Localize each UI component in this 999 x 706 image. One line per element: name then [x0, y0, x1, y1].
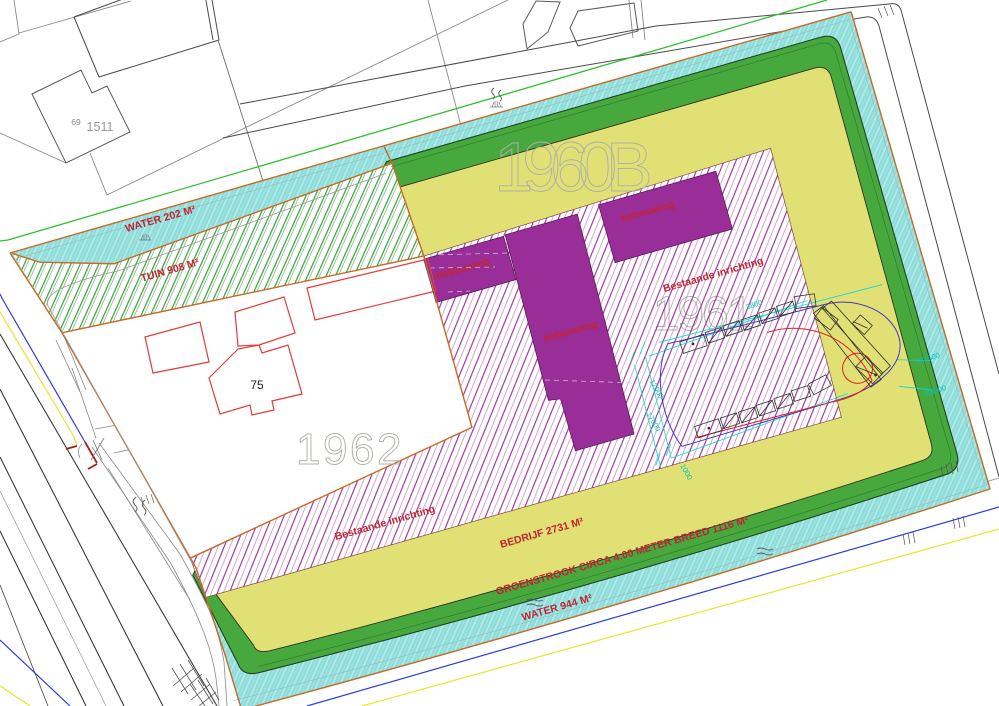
svg-text:1962: 1962: [296, 425, 404, 474]
svg-text:1960B: 1960B: [494, 128, 649, 206]
svg-text:69: 69: [71, 117, 81, 127]
svg-text:75: 75: [250, 378, 264, 392]
svg-text:1511: 1511: [87, 120, 114, 134]
